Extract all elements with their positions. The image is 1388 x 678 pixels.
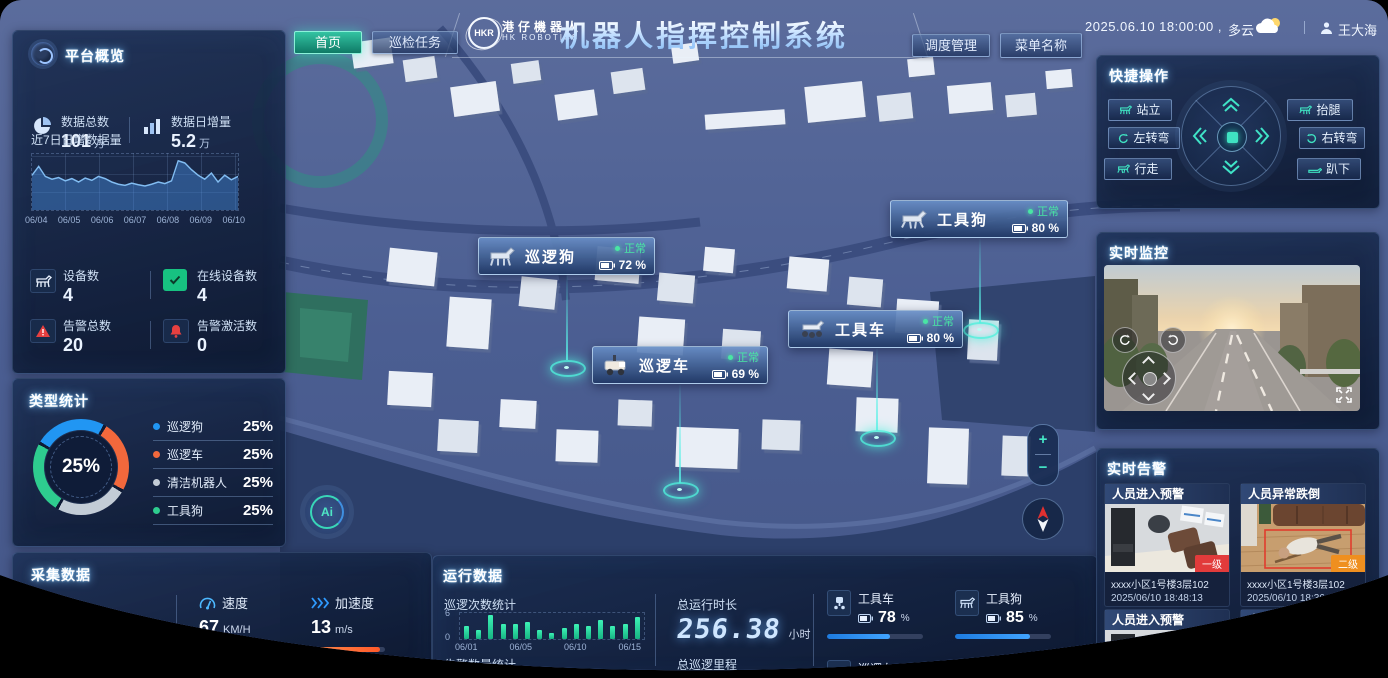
robot-dog-icon [1308, 165, 1322, 174]
nav-dispatch[interactable]: 调度管理 [912, 34, 990, 57]
runtime-label: 总运行时长 [677, 596, 737, 613]
alert-title: 人员异常跌倒 [1241, 484, 1365, 504]
divider [655, 594, 656, 666]
ptz-center[interactable] [1143, 372, 1157, 386]
collected-data-title: 采集数据 [31, 565, 91, 585]
robot-dog-image [487, 244, 517, 268]
quick-op-label: 左转弯 [1133, 128, 1169, 148]
legend-label: 巡逻狗 [167, 418, 203, 435]
panel-collected-data: 采集数据 电量 速度 67KM/H 加速度 13m/s [12, 552, 432, 678]
dpad-right-icon[interactable] [1254, 126, 1270, 146]
divider [129, 117, 130, 143]
quick-op-label: 站立 [1136, 100, 1160, 120]
map-marker-patrol-dog[interactable]: 巡逻狗 正常 72 % [478, 237, 655, 275]
legend-item-patrol-car[interactable]: 巡逻车25% [153, 441, 273, 469]
ai-icon: Ai [310, 495, 344, 529]
status-dot [923, 319, 928, 324]
quick-op-label: 趴下 [1326, 159, 1350, 179]
logo-icon: HKR [468, 17, 500, 49]
marker-status: 正常 [624, 240, 646, 256]
status-dot [728, 355, 733, 360]
alert-time: 2025/06/10 18:48:13 [1105, 591, 1229, 604]
marker-battery: 69 % [732, 367, 759, 381]
bar-chart-icon [143, 117, 161, 135]
alarm-warning-icon [30, 319, 56, 343]
legend-label: 清洁机器人 [167, 474, 227, 491]
map-marker-tool-dog[interactable]: 工具狗 正常 80 % [890, 200, 1068, 238]
nav-menu[interactable]: 菜单名称 [1000, 33, 1082, 58]
quick-op-turn-left[interactable]: 左转弯 [1108, 127, 1180, 149]
robot-label: 工具狗 [986, 590, 1038, 607]
compass-needle-icon [1023, 499, 1063, 539]
runtime-value: 256.38小时 [677, 614, 811, 645]
accel-progress [311, 647, 385, 652]
marker-battery: 80 % [1032, 221, 1059, 235]
marker-status: 正常 [737, 349, 759, 365]
legend-value: 25% [243, 502, 273, 519]
overview-icon [31, 42, 55, 66]
zoom-out-button[interactable]: − [1028, 459, 1058, 476]
run-data-title: 运行数据 [443, 566, 503, 586]
robot-status-patrol-car: 巡逻车 [827, 660, 937, 678]
user-icon [1320, 21, 1333, 34]
direction-pad [1181, 86, 1281, 186]
compass[interactable] [1022, 498, 1064, 540]
alert-thumbnail [1241, 630, 1365, 678]
battery-icon [907, 334, 923, 343]
legend-item-clean-robot[interactable]: 清洁机器人25% [153, 469, 273, 497]
cloud-icon [1254, 14, 1284, 38]
rotate-right-icon [1306, 133, 1317, 144]
trend-chart [31, 153, 239, 211]
overview-title: 平台概览 [65, 46, 125, 66]
alert-time: 2025/06/10 18:36:44 [1241, 591, 1365, 604]
speed-stat: 速度 67KM/H [199, 593, 273, 652]
ptz-down[interactable] [1142, 388, 1155, 401]
robot-dog-icon [1299, 105, 1312, 115]
tool-dog-battery-bar [955, 634, 1051, 639]
nav-menu-label: 菜单名称 [1001, 34, 1081, 57]
online-check-icon [163, 269, 187, 291]
weather-label: 多云 [1228, 20, 1254, 39]
legend-dot [153, 423, 160, 430]
dpad-left-icon[interactable] [1192, 126, 1208, 146]
ptz-rotate-right[interactable] [1160, 327, 1186, 353]
alert-location: xxxx小区1号楼3层102 [1105, 572, 1229, 591]
divider [1035, 454, 1051, 455]
patrol-x-axis: 06/0106/0506/1006/15 [455, 642, 641, 652]
alert-title: 人员异常跌倒 [1241, 610, 1365, 630]
alert-location: xxxx小区1号楼3层102 [1241, 572, 1365, 591]
stat-alarm-active: 告警激活数 0 [197, 317, 257, 356]
quick-op-stand[interactable]: 站立 [1108, 99, 1172, 121]
marker-status: 正常 [1037, 203, 1059, 219]
robot-dog-image [899, 207, 929, 231]
panel-type-stats: 类型统计 25% 巡逻狗25% 巡逻车25% 清洁机器人25% 工具狗25% [12, 378, 286, 547]
alert-card-fall-2[interactable]: 人员异常跌倒 [1240, 609, 1366, 678]
legend-dot [153, 507, 160, 514]
zoom-in-button[interactable]: + [1028, 431, 1058, 448]
legend-value: 25% [243, 446, 273, 463]
battery-icon [986, 614, 1001, 623]
marker-ground-ring [663, 482, 699, 499]
panel-platform-overview: 平台概览 数据总数 101万 数据日增量 5.2万 近7日日增数据量 06/04… [12, 30, 286, 374]
alert-card-entry-2[interactable]: 人员进入预警 [1104, 609, 1230, 678]
alerts-title: 实时告警 [1107, 459, 1167, 479]
acceleration-icon [311, 597, 329, 609]
quick-op-label: 右转弯 [1321, 128, 1357, 148]
marker-label: 巡逻狗 [525, 246, 599, 267]
quick-op-label: 抬腿 [1316, 100, 1340, 120]
alert-thumbnail [1105, 630, 1229, 678]
map-marker-tool-car[interactable]: 工具车 正常 80 % [788, 310, 963, 348]
alarm-bell-icon [163, 319, 189, 343]
patrol-count-title: 巡逻次数统计 [444, 596, 516, 613]
robot-dog-icon [1119, 105, 1132, 115]
patrol-y-axis: 60 [445, 608, 450, 642]
trend-x-axis: 06/0406/0506/0606/0706/0806/0906/10 [25, 215, 245, 225]
type-donut-chart: 25% [33, 419, 129, 515]
quick-op-lift-leg[interactable]: 抬腿 [1287, 99, 1353, 121]
panel-run-data: 运行数据 巡逻次数统计 60 06/0106/0506/1006/15 告警数量… [432, 555, 1098, 678]
marker-label: 工具狗 [937, 209, 1012, 230]
divider [150, 321, 151, 349]
battery-icon [858, 614, 873, 623]
legend-dot [153, 451, 160, 458]
marker-ground-ring [860, 430, 896, 447]
panel-live-monitor: 实时监控 [1096, 232, 1380, 430]
page-title: 机器人指挥控制系统 [560, 13, 848, 55]
accel-stat: 加速度 13m/s [311, 593, 385, 652]
patrol-car-image [601, 353, 631, 377]
mileage-label: 总巡逻里程 [677, 656, 737, 673]
marker-label: 巡逻车 [639, 355, 712, 376]
quick-op-turn-right[interactable]: 右转弯 [1299, 127, 1365, 149]
tool-car-battery-bar [827, 634, 923, 639]
robot-car-image [797, 317, 827, 341]
accel-label: 加速度 [335, 593, 374, 612]
dashboard-screen: 首页 巡检任务 HKR 港仔機器人 HK ROBOTICS 机器人指挥控制系统 … [0, 0, 1388, 678]
panel-quick-ops: 快捷操作 站立 抬腿 左转弯 右转弯 行走 趴下 [1096, 55, 1380, 209]
stat-device-count: 设备数 4 [63, 267, 99, 306]
battery-icon [1012, 224, 1028, 233]
ptz-rotate-left[interactable] [1112, 327, 1138, 353]
alert-title: 人员进入预警 [1105, 484, 1229, 504]
marker-battery: 80 % [927, 331, 954, 345]
marker-beam [566, 276, 568, 360]
marker-beam [876, 349, 878, 431]
type-stats-title: 类型统计 [29, 391, 89, 411]
robot-label: 巡逻车 [858, 660, 894, 677]
ptz-right[interactable] [1158, 372, 1171, 385]
stat-data-daily: 数据日增量 5.2万 [171, 113, 231, 152]
map-marker-patrol-car[interactable]: 巡逻车 正常 69 % [592, 346, 768, 384]
nav-dispatch-label: 调度管理 [913, 35, 989, 56]
marker-battery: 72 % [619, 258, 646, 272]
nav-home[interactable]: 首页 [294, 31, 362, 54]
legend-value: 25% [243, 474, 273, 491]
legend-item-patrol-dog[interactable]: 巡逻狗25% [153, 413, 273, 441]
speed-progress [199, 647, 273, 652]
alert-thumbnail: 二级 [1241, 504, 1365, 572]
nav-inspection-tasks[interactable]: 巡检任务 [372, 31, 458, 54]
marker-ground-ring [550, 360, 586, 377]
patrol-car-icon [827, 660, 851, 678]
battery-label: 电量 [55, 597, 81, 616]
alert-level-badge: 二级 [1331, 555, 1365, 572]
tool-car-icon [827, 590, 851, 616]
robot-status-tool-dog: 工具狗 85% [955, 590, 1065, 639]
status-dot [1028, 209, 1033, 214]
donut-center-value: 25% [33, 419, 129, 515]
monitor-title: 实时监控 [1109, 243, 1169, 263]
robot-status-tool-car: 工具车 78% [827, 590, 937, 639]
status-dot [615, 246, 620, 251]
battery-stat: 电量 [31, 597, 81, 616]
nav-home-label: 首页 [295, 32, 361, 53]
ai-assistant-button[interactable]: Ai [305, 490, 349, 534]
marker-beam [679, 385, 681, 483]
alert-level-badge: 一级 [1195, 555, 1229, 572]
quick-op-label: 行走 [1134, 159, 1158, 179]
type-legend: 巡逻狗25% 巡逻车25% 清洁机器人25% 工具狗25% [153, 413, 273, 525]
ptz-up[interactable] [1142, 356, 1155, 369]
marker-status: 正常 [932, 313, 954, 329]
alert-card-fall-1[interactable]: 人员异常跌倒 二级 xxxx小区1号楼3层102 2025/06/10 18:3… [1240, 483, 1366, 607]
quick-op-lie-down[interactable]: 趴下 [1297, 158, 1361, 180]
quick-ops-title: 快捷操作 [1109, 66, 1169, 86]
patrol-bar-chart [459, 612, 645, 640]
legend-label: 巡逻车 [167, 446, 203, 463]
quick-op-walk[interactable]: 行走 [1104, 158, 1172, 180]
ptz-left[interactable] [1128, 372, 1141, 385]
panel-live-alerts: 实时告警 人员进入预警 一级 xxxx小区1号楼3层102 2025/06/10… [1096, 448, 1380, 678]
robot-dog-icon [30, 269, 56, 293]
trend-title: 近7日日增数据量 [31, 131, 122, 148]
alert-thumbnail: 一级 [1105, 504, 1229, 572]
marker-ground-ring [963, 322, 999, 339]
header-frame-line [452, 57, 922, 58]
alarm-count-title: 告警数量统计 [444, 656, 516, 673]
alert-card-entry-1[interactable]: 人员进入预警 一级 xxxx小区1号楼3层102 2025/06/10 18:4… [1104, 483, 1230, 607]
fullscreen-icon[interactable] [1336, 387, 1352, 403]
ptz-pad [1122, 351, 1176, 405]
battery-icon [712, 370, 728, 379]
dpad-down-icon[interactable] [1221, 159, 1241, 175]
datetime: 2025.06.10 18:00:00 , [1085, 19, 1222, 34]
legend-dot [153, 479, 160, 486]
rotate-left-icon [1118, 133, 1129, 144]
nav-inspection-label: 巡检任务 [373, 32, 457, 53]
robot-label: 工具车 [858, 590, 910, 607]
stat-device-online: 在线设备数 4 [197, 267, 257, 306]
marker-label: 工具车 [835, 319, 907, 340]
marker-beam [979, 239, 981, 323]
divider [176, 595, 177, 655]
battery-icon [31, 601, 49, 612]
legend-label: 工具狗 [167, 502, 203, 519]
divider [813, 594, 814, 666]
video-feed[interactable] [1104, 265, 1360, 411]
username[interactable]: 王大海 [1338, 20, 1377, 39]
map-zoom-control: + − [1027, 424, 1059, 486]
header-separator [1304, 21, 1305, 34]
speedometer-icon [199, 595, 216, 610]
speed-label: 速度 [222, 593, 248, 612]
dpad-stop-button[interactable] [1217, 122, 1247, 152]
divider [150, 271, 151, 299]
legend-value: 25% [243, 418, 273, 435]
stat-alarm-total: 告警总数 20 [63, 317, 111, 356]
alert-title: 人员进入预警 [1105, 610, 1229, 630]
legend-item-tool-dog[interactable]: 工具狗25% [153, 497, 273, 525]
dpad-up-icon[interactable] [1221, 97, 1241, 113]
robot-dog-icon [1117, 164, 1130, 174]
tool-dog-icon [955, 590, 979, 616]
battery-icon [599, 261, 615, 270]
